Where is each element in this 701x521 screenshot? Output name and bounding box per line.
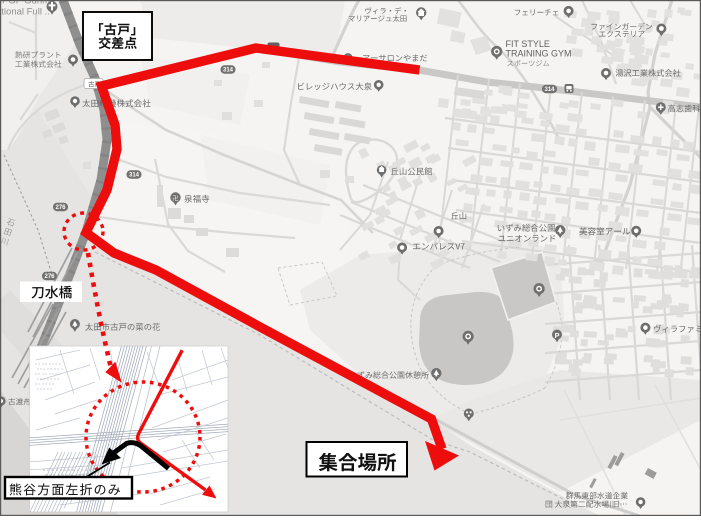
svg-text:ational Full ..: ational Full .. xyxy=(0,7,50,18)
svg-text:TRAINING GYM: TRAINING GYM xyxy=(506,49,572,59)
svg-text:P: P xyxy=(554,331,559,340)
svg-text:314: 314 xyxy=(223,68,234,74)
svg-text:276: 276 xyxy=(55,205,66,211)
svg-text:FIT STYLE: FIT STYLE xyxy=(506,39,550,49)
svg-text:276: 276 xyxy=(44,274,55,280)
svg-text:314: 314 xyxy=(544,87,555,93)
svg-text:314: 314 xyxy=(129,173,140,179)
